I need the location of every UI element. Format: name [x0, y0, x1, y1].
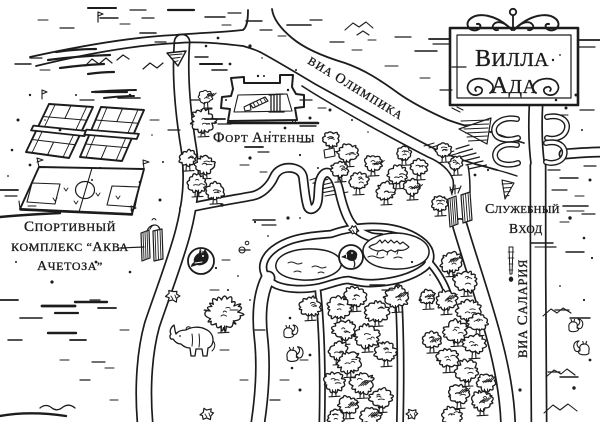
svg-text:АДА: АДА: [491, 73, 538, 99]
svg-text:ВИЛЛА: ВИЛЛА: [475, 46, 549, 72]
svg-text:СЛУЖЕБНЫЙ: СЛУЖЕБНЫЙ: [485, 202, 560, 217]
svg-text:КОМПЛЕКС “АКВА: КОМПЛЕКС “АКВА: [11, 240, 129, 255]
svg-text:АЧЕТОЗА”: АЧЕТОЗА”: [37, 259, 103, 274]
svg-text:СПОРТИВНЫЙ: СПОРТИВНЫЙ: [24, 219, 116, 235]
svg-text:ВХОД: ВХОД: [509, 221, 543, 236]
svg-text:ФОРТ АНТЕННЫ: ФОРТ АНТЕННЫ: [213, 130, 315, 146]
svg-text:ВИА САЛАРИЯ: ВИА САЛАРИЯ: [515, 259, 531, 358]
